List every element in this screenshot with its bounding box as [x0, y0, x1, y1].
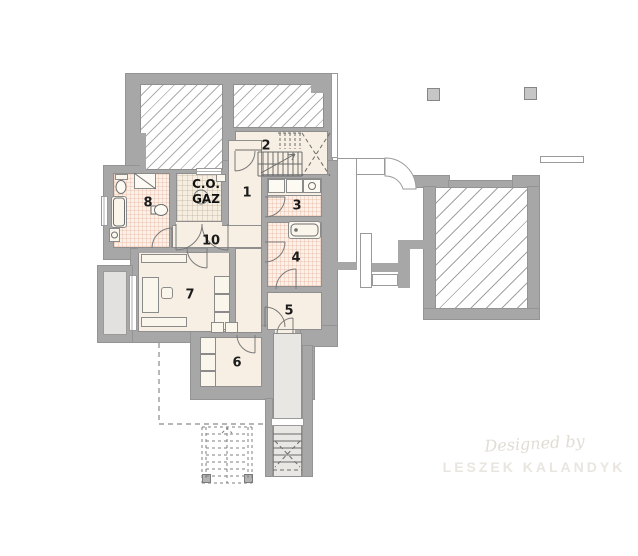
room8-shower [134, 173, 156, 189]
room7-shelf-bottom [141, 317, 187, 327]
room-label-7: 7 [185, 288, 194, 303]
room7-shelf-top [141, 254, 187, 263]
room6-cabinet-3 [200, 371, 216, 387]
room-label-4: 4 [291, 251, 300, 266]
boiler-label-line1: C.O. [192, 177, 220, 191]
room6-cabinet-2 [200, 354, 216, 371]
hall-cabinet-1 [211, 322, 224, 333]
floor-plan: 1 2 3 4 5 6 7 8 10 C.O. GAZ Designed by … [0, 0, 638, 556]
garage-wall-left [423, 186, 436, 320]
boiler-room-window [196, 168, 222, 175]
garage-wall-bottom [423, 308, 540, 320]
room6-cabinet-1 [200, 337, 216, 354]
watermark-author: LESZEK KALANDYK [430, 459, 638, 475]
stair-newel-left [202, 474, 211, 483]
room3-counter-3 [303, 179, 321, 193]
room7-chair [161, 287, 173, 299]
room-label-3: 3 [292, 199, 301, 214]
boiler-label-line2: GAZ [192, 192, 220, 206]
curved-wall-outline [385, 158, 416, 189]
hall-lower-floor [235, 248, 262, 333]
passage-wall-stub-a [372, 263, 398, 272]
passage-wall-stub-b [398, 240, 410, 288]
outline-passage-horizontal [372, 274, 398, 286]
wall-room7-top-b [207, 248, 230, 253]
wall-stair-corridor-left [265, 398, 273, 477]
passage-wall-stub-c [410, 240, 432, 249]
room3-counter-2 [286, 179, 303, 193]
stair-corridor-floor [273, 333, 302, 477]
wall-stair-corridor-right [302, 345, 313, 477]
outline-band-cap [337, 262, 357, 270]
room7-cabinet-1 [214, 276, 230, 294]
room-label-2: 2 [261, 139, 270, 154]
wall-room7-top-a [138, 248, 186, 253]
hall-cabinet-2 [225, 322, 238, 333]
garage-wall-right [527, 186, 540, 320]
outline-passage-vertical [360, 233, 372, 288]
room7-desk [142, 277, 159, 313]
outline-stripe-vertical [331, 73, 338, 158]
room8-bathtub [111, 196, 127, 228]
room7-window [129, 275, 137, 331]
window-well [103, 271, 127, 335]
room8-window [101, 196, 108, 226]
outline-band-vertical [337, 158, 357, 264]
room-label-8: 8 [143, 196, 152, 211]
stair-newel-right [244, 474, 253, 483]
garage-wall-top-mid [448, 180, 514, 188]
wall-notch-right [311, 84, 324, 93]
room8-toilet-tank [115, 174, 128, 180]
room-label-10: 10 [202, 234, 220, 249]
unexcavated-area-left [140, 84, 223, 170]
room-label-5: 5 [284, 304, 293, 319]
room4-bathtub [288, 221, 321, 239]
room3-counter-1 [268, 179, 285, 193]
room7-cabinet-2 [214, 294, 230, 312]
room-label-6: 6 [232, 356, 241, 371]
watermark-designed-by: Designed by [452, 430, 618, 458]
outline-stub-right [540, 156, 584, 163]
carport-pillar-right [524, 87, 537, 100]
room8-washbasin [109, 228, 120, 242]
boiler-door-opening [176, 222, 222, 226]
room5-floor [267, 292, 322, 330]
room-label-1: 1 [242, 186, 251, 201]
garage-unexcavated-hatch [436, 188, 527, 308]
basement-entry-door [271, 418, 304, 426]
carport-pillar-left [427, 88, 440, 101]
wall-notch-left [140, 133, 146, 170]
